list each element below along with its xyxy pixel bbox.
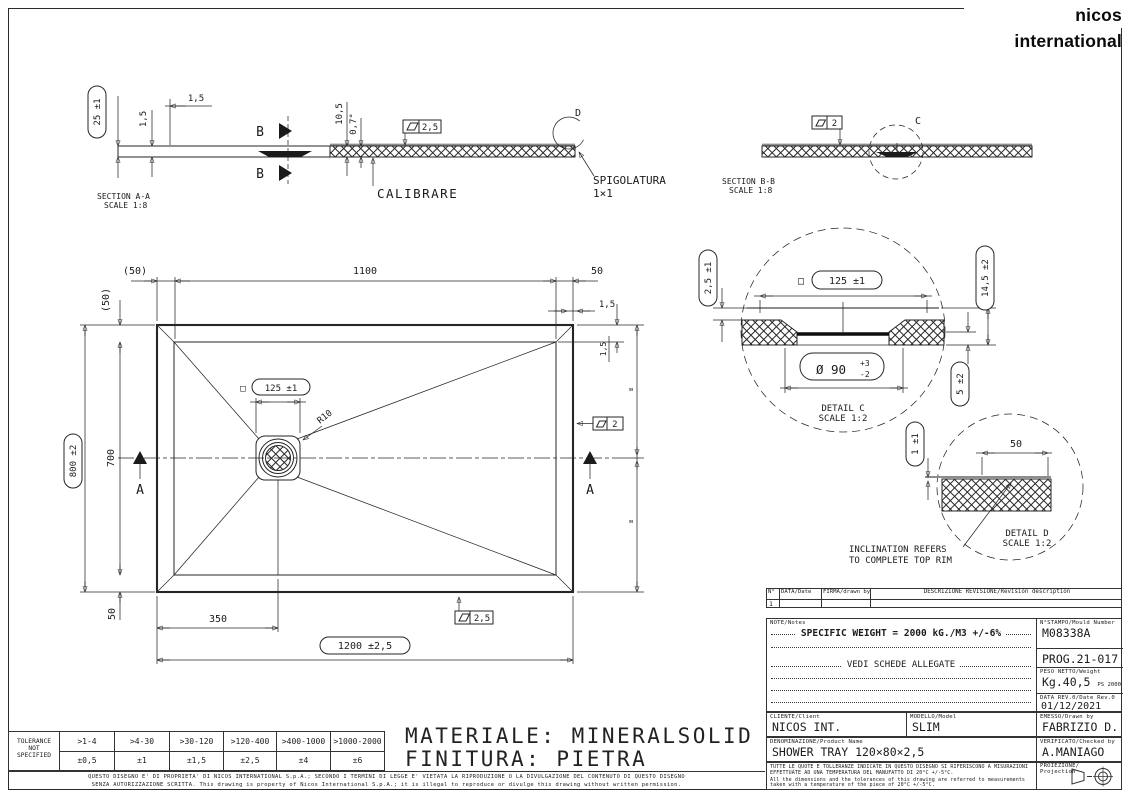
equal-mark-top: " (628, 386, 635, 399)
rev-col-desc: DESCRIZIONE REVISIONE/Revision descripti… (872, 589, 1122, 595)
square-symbol: □ (240, 384, 246, 394)
tol-label-3: SPECIFIED (9, 752, 59, 759)
spigolatura-size: 1×1 (593, 187, 613, 200)
rev-col-sign: FIRMA/drawn by (823, 589, 870, 595)
dim-125: 125 ±1 (829, 276, 865, 287)
finish-line: FINITURA: PIETRA (405, 748, 753, 771)
tol-value: ±6 (330, 751, 385, 771)
detail-c-view: 2,5 ±1 125 ±1 □ 14,5 ±2 5 ±2 (699, 228, 996, 432)
dim-1-5-tr: 1,5 (599, 300, 615, 310)
dim-700: 700 (106, 449, 117, 467)
dim-height: 14,5 ±2 (981, 259, 991, 297)
dim-1200: 1200 ±2,5 (338, 641, 392, 652)
drawnby-value: FABRIZIO D. (1037, 720, 1123, 734)
tol-range: >30-120 (169, 731, 224, 752)
prog-value: PROG.21-017 (1037, 649, 1123, 666)
disclaimer-line-1: QUESTO DISEGNO E' DI PROPRIETA' DI NICOS… (8, 774, 765, 782)
note-vedi-schede: VEDI SCHEDE ALLEGATE (842, 660, 960, 670)
section-bb-scale: SCALE 1:8 (729, 186, 773, 195)
tol-value: ±1 (114, 751, 170, 771)
note-specific-weight: SPECIFIC WEIGHT = 2000 kG./M3 +/-6% (796, 628, 1006, 639)
cut-label-a-right: A (586, 483, 594, 498)
dim-rim: 50 (1010, 439, 1022, 450)
cut-label-a-left: A (136, 483, 144, 498)
tol-range: >120-400 (223, 731, 277, 752)
drawnby-label: EMESSO/Drawn by (1037, 713, 1123, 720)
temp-note-row: TUTTE LE QUOTE E TOLLERANZE INDICATE IN … (766, 762, 1122, 790)
tol-label-1: TOLERANCE (9, 738, 59, 745)
dim-800: 800 ±2 (69, 445, 79, 478)
model-label: MODELLO/Model (907, 713, 1036, 720)
detail-c-scale: SCALE 1:2 (819, 414, 868, 424)
section-a-arrow-left (133, 451, 147, 464)
dim-50-bl: 50 (107, 608, 118, 620)
dim-depth: 2,5 ±1 (704, 262, 714, 295)
weight-sub: PS 2000 (1097, 682, 1121, 688)
weight-value: Kg.40,5 (1042, 675, 1090, 689)
rev-col-no: N° (768, 589, 775, 595)
daterev-label: DATA REV.0/Date Rev.0 (1037, 694, 1123, 701)
detail-d-view: 50 1 ±1 INCLINATION REFERS TO COMPLETE T… (849, 414, 1083, 566)
disclaimer: QUESTO DISEGNO E' DI PROPRIETA' DI NICOS… (8, 771, 765, 790)
material-line: MATERIALE: MINERALSOLID (405, 725, 753, 748)
tol-range: >1-4 (59, 731, 115, 752)
dim-50-paren-h: (50) (123, 266, 147, 277)
tol-range: >1000-2000 (330, 731, 385, 752)
product-label: DENOMINAZIONE/Product Name (767, 738, 1036, 745)
flatness-bottom-value: 2,5 (474, 614, 490, 624)
flatness-right-value: 2 (612, 420, 617, 430)
product-value: SHOWER TRAY 120×80×2,5 (767, 745, 1036, 759)
tolerance-table: TOLERANCE NOT SPECIFIED >1-4 >4-30 >30-1… (8, 731, 385, 771)
dim-350: 350 (209, 614, 227, 625)
dim-flange: 5 ±2 (956, 373, 966, 395)
calibrare-label: CALIBRARE (377, 186, 458, 201)
dim-25: 25 ±1 (93, 98, 103, 125)
dim-r10: R10 (316, 408, 335, 426)
disclaimer-line-2: SENZA AUTORIZZAZIONE SCRITTA. This drawi… (8, 782, 765, 790)
plan-view: A A (50) 1100 50 1,5 (64, 266, 644, 664)
dim-hole: Ø 90 (816, 362, 846, 377)
drawing-sheet: 25 ±1 1,5 1,5 B B 10,5 (0, 0, 1130, 798)
client-label: CLIENTE/Client (767, 713, 906, 720)
detail-c-title: DETAIL C (821, 404, 864, 414)
section-bb-title: SECTION B-B (722, 177, 775, 186)
dim-10-5: 10,5 (335, 103, 345, 125)
tray-outline (157, 325, 573, 592)
detail-c-ref: C (915, 116, 921, 127)
product-row: DENOMINAZIONE/Product Name SHOWER TRAY 1… (766, 737, 1122, 762)
detail-d-title: DETAIL D (1005, 529, 1048, 539)
section-b-arrow-bottom (279, 165, 292, 181)
tol-label-2: NOT (9, 745, 59, 752)
section-aa-scale: SCALE 1:8 (104, 201, 148, 210)
tol-value: ±1,5 (169, 751, 224, 771)
inclination-note-1: INCLINATION REFERS (849, 545, 947, 555)
flatness-value: 2 (832, 119, 837, 129)
section-b-arrow-top (279, 123, 292, 139)
flatness-value: 2,5 (422, 123, 438, 133)
client-value: NICOS INT. (767, 720, 906, 734)
section-a-arrow-right (583, 451, 597, 464)
dim-50-tr: 50 (591, 266, 603, 277)
weight-label: PESO NETTO/Weight (1037, 668, 1123, 675)
mould-label: N°STAMPO/Mould Number (1037, 619, 1123, 626)
tol-range: >4-30 (114, 731, 170, 752)
tol-range: >400-1000 (276, 731, 331, 752)
temp-note-en: All the dimensions and the tolerances of… (767, 777, 1036, 790)
temp-note-it: TUTTE LE QUOTE E TOLLERANZE INDICATE IN … (767, 763, 1036, 777)
detail-d-scale: SCALE 1:2 (1003, 539, 1052, 549)
tol-value: ±4 (276, 751, 331, 771)
dim-1-5-left: 1,5 (139, 111, 149, 127)
tol-value: ±0,5 (59, 751, 115, 771)
drain (256, 436, 300, 480)
dim-hole-minus: -2 (860, 370, 870, 379)
dim-1100: 1100 (353, 266, 377, 277)
client-row: CLIENTE/Client NICOS INT. MODELLO/Model … (766, 712, 1122, 737)
dim-angle: 0,7° (349, 113, 359, 135)
brand-logo: nicos international (964, 2, 1122, 28)
tray-rim-inner (174, 342, 556, 575)
tol-value: ±2,5 (223, 751, 277, 771)
checkedby-value: A.MANIAGO (1037, 745, 1123, 759)
dim-125: 125 ±1 (265, 384, 298, 394)
equal-mark-bottom: " (628, 518, 635, 531)
rev-row-number: 1 (769, 600, 773, 608)
notes-label: NOTE/Notes (767, 619, 1036, 626)
section-aa-title: SECTION A-A (97, 192, 150, 201)
section-bb-view: C 2 SECTION B-B SCALE 1:8 (722, 116, 1032, 195)
dim-1-5-right: 1,5 (599, 342, 608, 357)
model-value: SLIM (907, 720, 1036, 734)
drain-recess-section (258, 151, 312, 157)
dim-50-paren-v: (50) (101, 288, 112, 312)
dim-hole-plus: +3 (860, 359, 870, 368)
dim-lip: 1 ±1 (911, 433, 921, 455)
first-angle-projection-icon (1070, 766, 1120, 788)
cut-label-b-bottom: B (256, 167, 264, 182)
notes-box: NOTE/Notes SPECIFIC WEIGHT = 2000 kG./M3… (766, 618, 1122, 712)
revision-table: N° DATA/Date FIRMA/drawn by DESCRIZIONE … (766, 588, 1122, 608)
section-aa-view: 25 ±1 1,5 1,5 B B 10,5 (88, 86, 666, 210)
checkedby-label: VERIFICATO/Checked by (1037, 738, 1123, 745)
daterev-value: 01/12/2021 (1037, 701, 1123, 712)
square-symbol: □ (798, 276, 804, 287)
material-finish: MATERIALE: MINERALSOLID FINITURA: PIETRA (405, 725, 753, 771)
spigolatura-label: SPIGOLATURA (593, 174, 666, 187)
inclination-note-2: TO COMPLETE TOP RIM (849, 556, 953, 566)
rev-col-date: DATA/Date (781, 589, 811, 595)
mould-value: M08338A (1037, 626, 1123, 640)
dim-1-5-top: 1,5 (188, 94, 204, 104)
cut-label-b-top: B (256, 125, 264, 140)
detail-d-ref: D (575, 108, 581, 119)
